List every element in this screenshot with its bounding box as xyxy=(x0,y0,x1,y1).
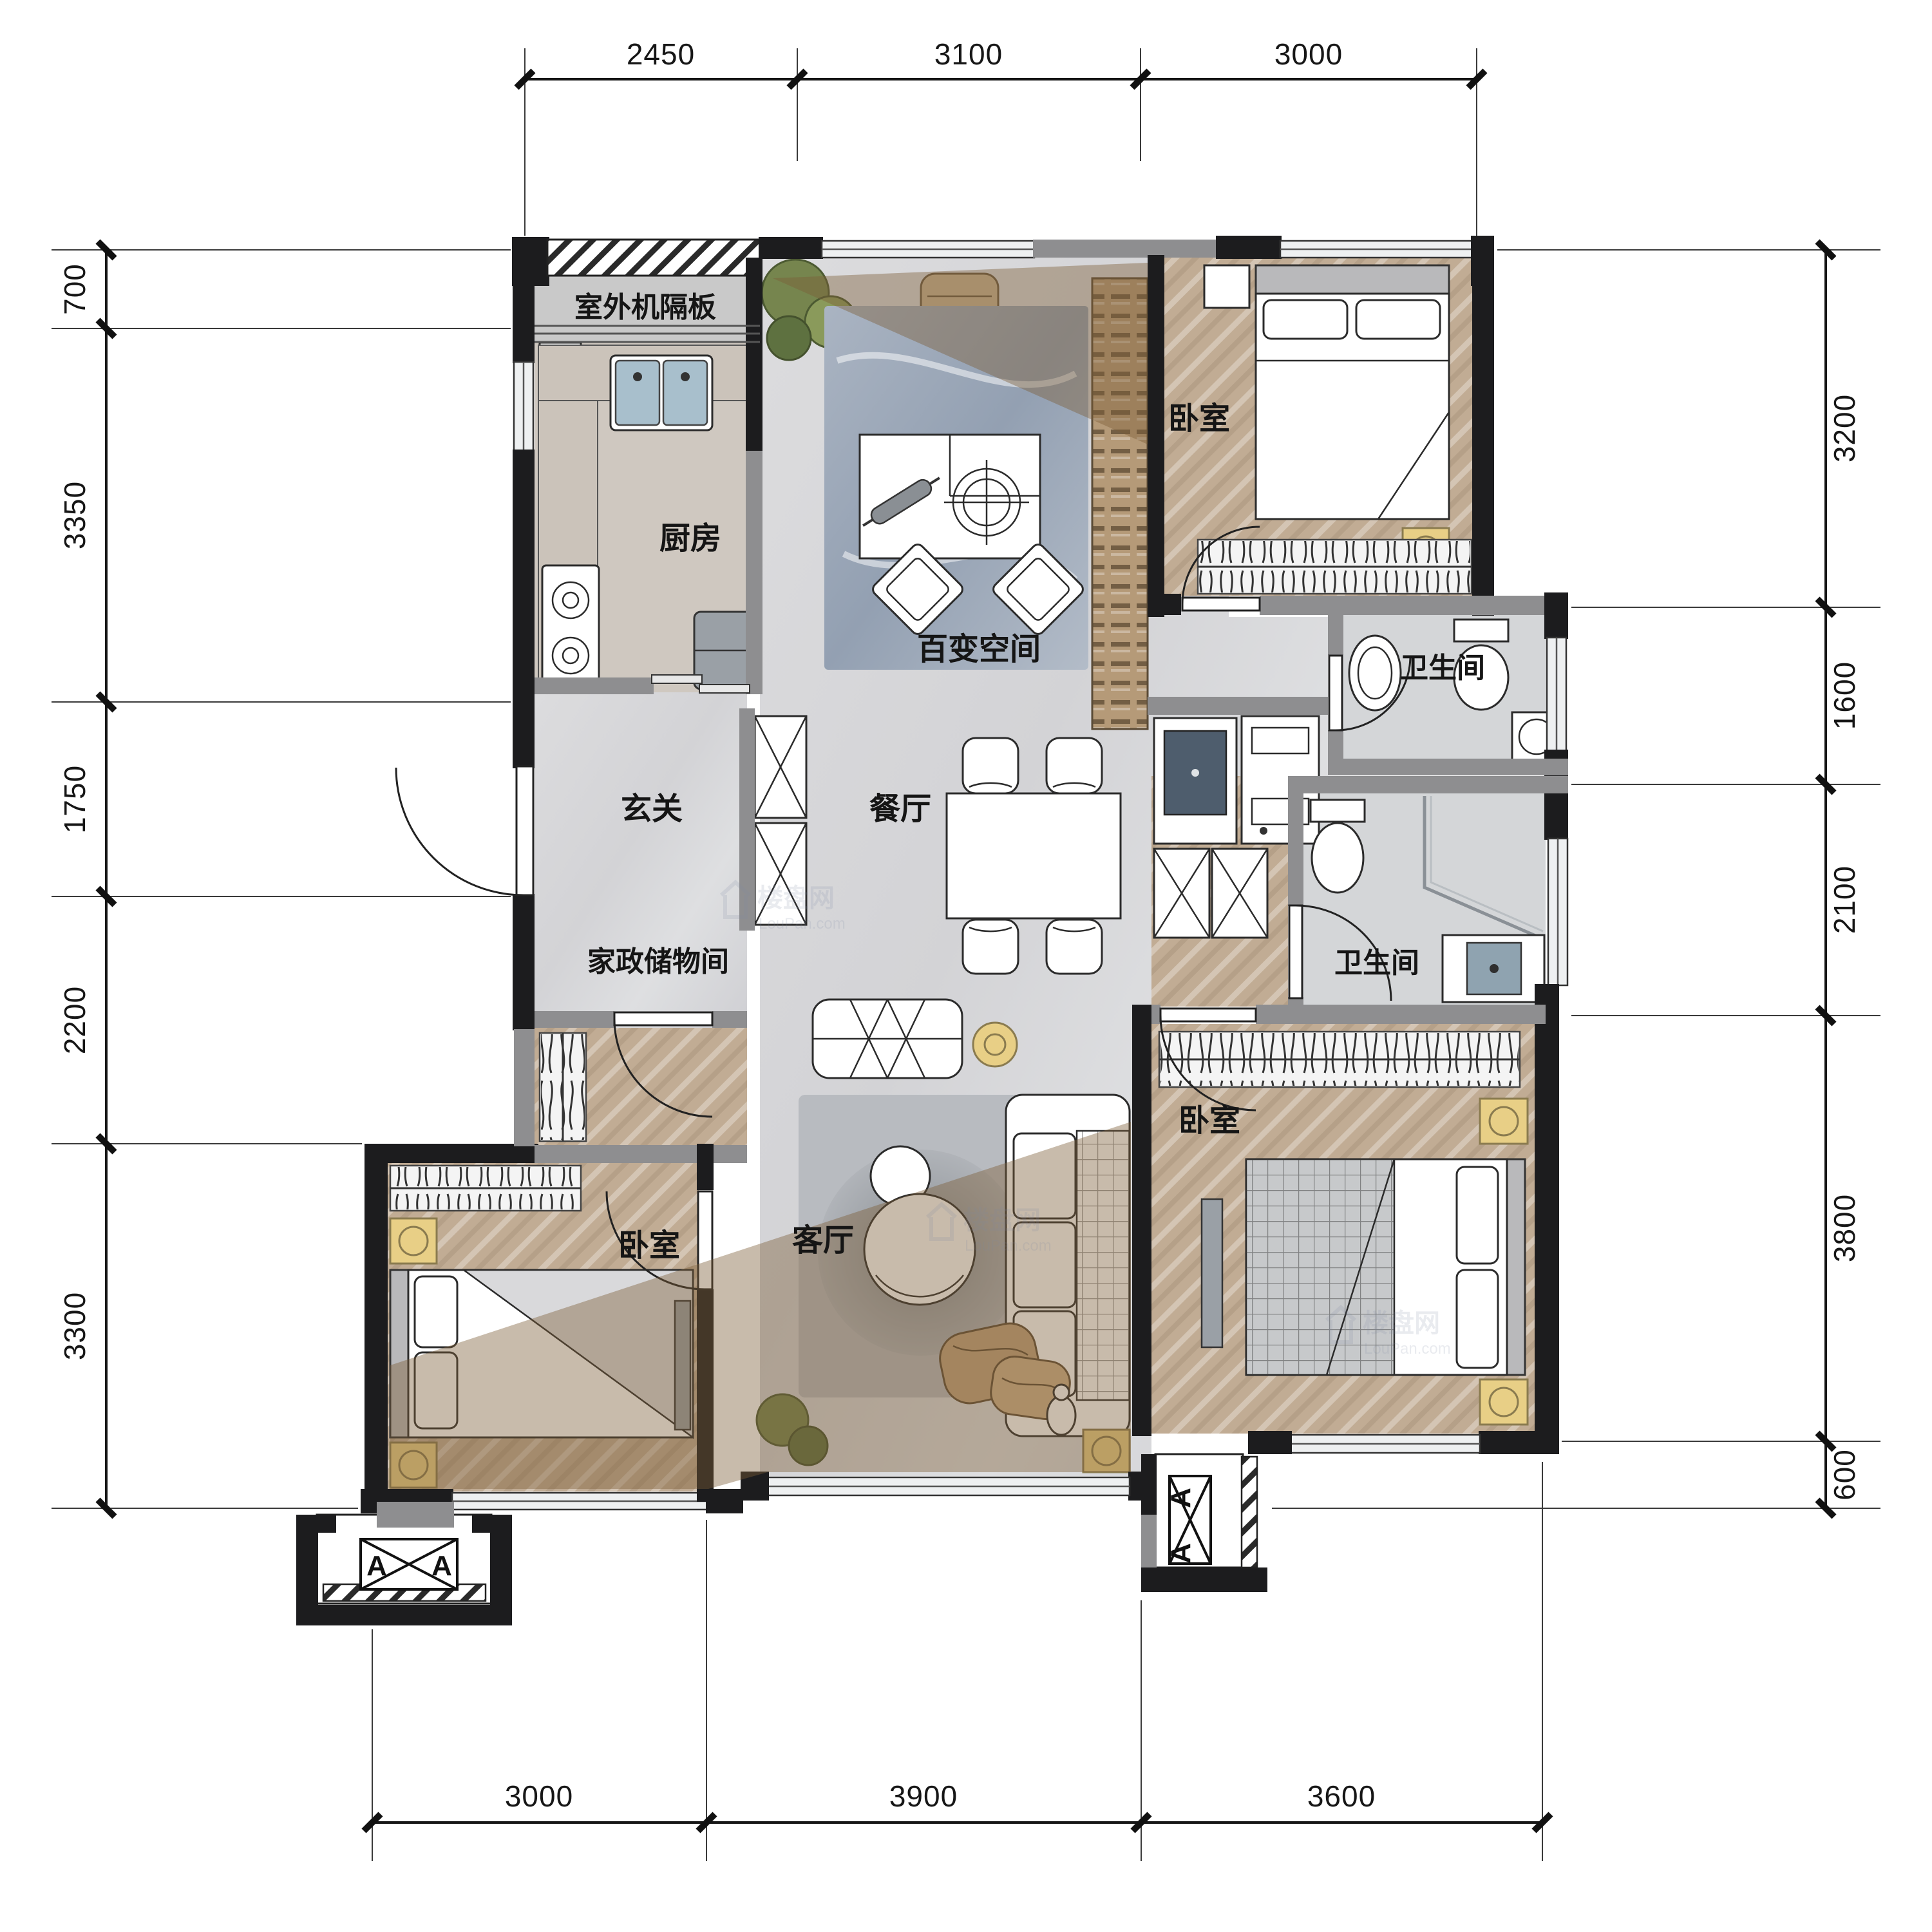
dim-right-4: 3800 xyxy=(1828,1194,1861,1262)
pillow-m-1 xyxy=(1457,1167,1498,1264)
headboard-tr xyxy=(1256,265,1449,294)
watermark-domain: LouPan.com xyxy=(965,1237,1052,1255)
label-bath-top: 卫生间 xyxy=(1400,652,1485,684)
toilet-tank-top xyxy=(1454,620,1508,641)
watermark-brand: 楼盘网 xyxy=(1363,1309,1440,1338)
watermark-brand: 楼盘网 xyxy=(757,884,835,913)
label-storage: 家政储物间 xyxy=(587,946,729,978)
label-balcony: 室外机隔板 xyxy=(574,291,716,323)
floorplan-drawing: 2450 3100 3000 700 3350 1750 2200 3300 3… xyxy=(0,0,1932,1932)
entry-door xyxy=(396,766,533,895)
stove xyxy=(542,565,599,690)
dim-left-5: 3300 xyxy=(58,1292,91,1360)
sink-basin-right xyxy=(663,361,707,425)
watermark-domain: LouPan.com xyxy=(759,915,846,933)
section-marker-bottom: A xyxy=(1165,1543,1197,1564)
nightstand-master-bottom xyxy=(1480,1379,1528,1425)
label-flex: 百变空间 xyxy=(917,632,1041,667)
dining-table xyxy=(947,793,1121,918)
label-bedroom-right: 卧室 xyxy=(1179,1104,1240,1138)
sink-drain-left xyxy=(633,372,642,381)
dim-left-4: 2200 xyxy=(58,986,91,1054)
dimension-chain-top: 2450 3100 3000 xyxy=(516,37,1485,236)
nightstand-tr xyxy=(1204,265,1249,308)
watermark-domain: LouPan.com xyxy=(1364,1340,1451,1358)
dim-top-3: 3000 xyxy=(1274,37,1343,71)
dim-right-5: 600 xyxy=(1828,1449,1861,1501)
dim-right-2: 1600 xyxy=(1828,661,1861,730)
toilet-tank-bottom xyxy=(1311,800,1365,822)
label-kitchen: 厨房 xyxy=(659,522,721,556)
pillow-m-2 xyxy=(1457,1270,1498,1368)
dining-chair-2 xyxy=(1046,738,1102,793)
label-living: 客厅 xyxy=(792,1224,854,1258)
label-dining: 餐厅 xyxy=(869,792,931,826)
toilet-bottom xyxy=(1312,823,1363,893)
dining-chair-1 xyxy=(963,738,1018,793)
pillow-2 xyxy=(1356,300,1440,339)
label-bedroom-top: 卧室 xyxy=(1168,402,1230,436)
nightstand-bl-top xyxy=(390,1218,437,1264)
pillow-bl-1 xyxy=(415,1276,457,1347)
ac-platform-mid: A A xyxy=(1141,1454,1267,1592)
dim-top-1: 2450 xyxy=(627,37,695,71)
sink-drain-right xyxy=(681,372,690,381)
dim-right-1: 3200 xyxy=(1828,394,1861,462)
dim-left-3: 1750 xyxy=(58,765,91,833)
section-marker-left: A xyxy=(366,1550,387,1582)
label-bath-bottom: 卫生间 xyxy=(1334,947,1419,979)
dim-bottom-1: 3000 xyxy=(505,1779,573,1813)
headboard-master xyxy=(1507,1159,1525,1375)
dimension-chain-bottom: 3000 3900 3600 xyxy=(364,1462,1551,1861)
label-bedroom-left: 卧室 xyxy=(618,1229,680,1263)
pillow-1 xyxy=(1264,300,1347,339)
floorplan-page: 2450 3100 3000 700 3350 1750 2200 3300 3… xyxy=(0,0,1932,1932)
dim-bottom-2: 3900 xyxy=(889,1779,958,1813)
dim-bottom-3: 3600 xyxy=(1307,1779,1376,1813)
ac-platform-left: A A xyxy=(296,1502,512,1625)
balcony-window-hatch xyxy=(547,240,760,276)
dim-top-2: 3100 xyxy=(934,37,1003,71)
sink-basin-left xyxy=(616,361,659,425)
bench-master xyxy=(1202,1199,1222,1347)
watermark-brand: 楼盘网 xyxy=(963,1206,1041,1235)
side-table-round xyxy=(973,1023,1017,1066)
kitchen-slider-leaf-1 xyxy=(652,675,702,683)
section-marker-right: A xyxy=(431,1550,452,1582)
section-marker-top: A xyxy=(1165,1488,1197,1508)
ac-mid-window-hatch xyxy=(1242,1457,1257,1567)
dim-left-1: 700 xyxy=(58,263,91,315)
nightstand-master-top xyxy=(1480,1099,1528,1144)
dim-right-3: 2100 xyxy=(1828,866,1861,934)
kitchen-slider-leaf-2 xyxy=(699,685,750,693)
storage-hanger-rack xyxy=(540,1033,586,1141)
dim-left-2: 3350 xyxy=(58,481,91,549)
label-entry: 玄关 xyxy=(621,792,683,826)
